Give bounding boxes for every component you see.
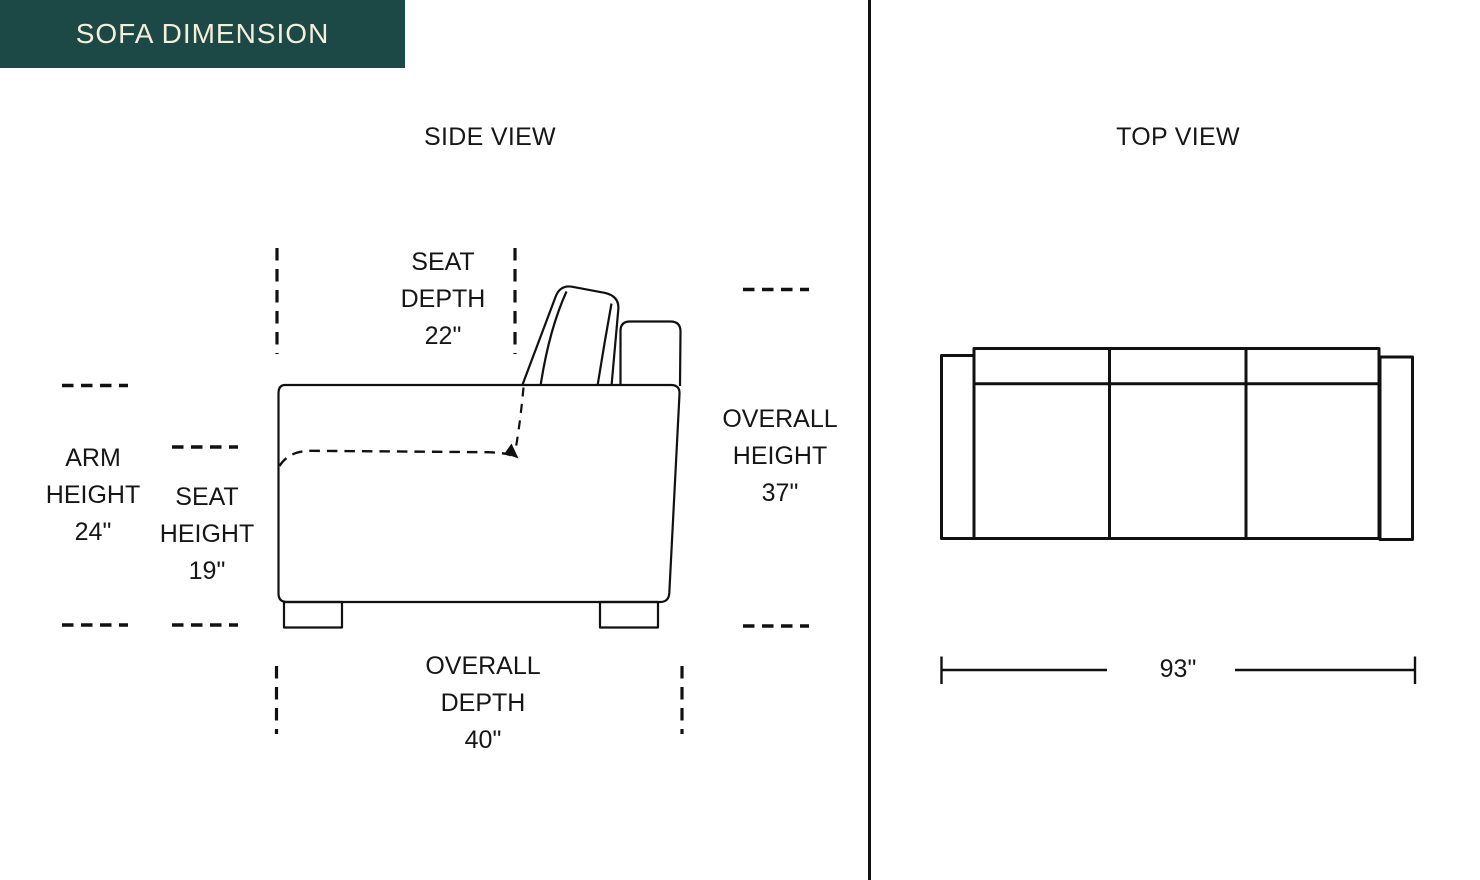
side-sofa-body [279, 385, 680, 602]
overall-height-label-text: OVERALL HEIGHT [722, 405, 837, 470]
seat-height-label: SEAT HEIGHT 19" [142, 479, 272, 590]
arm-height-label-text: ARM HEIGHT [46, 444, 140, 509]
top-sofa-body [974, 349, 1379, 539]
overall-width-value: 93" [1160, 651, 1197, 688]
side-sofa-foot-left [284, 602, 342, 628]
seat-height-label-text: SEAT HEIGHT [160, 483, 254, 548]
top-sofa-left-arm [942, 356, 975, 539]
overall-height-label: OVERALL HEIGHT 37" [704, 401, 856, 512]
top-sofa-right-arm [1380, 357, 1413, 540]
seat-depth-label-text: SEAT DEPTH [401, 248, 486, 313]
overall-depth-value: 40" [407, 722, 559, 759]
side-sofa-back-cushion [522, 286, 618, 386]
side-sofa-back-frame [621, 322, 681, 387]
overall-height-value: 37" [704, 475, 856, 512]
seat-depth-label: SEAT DEPTH 22" [372, 244, 514, 355]
overall-depth-label-text: OVERALL DEPTH [425, 652, 540, 717]
arm-height-label: ARM HEIGHT 24" [28, 440, 158, 551]
seat-depth-value: 22" [372, 318, 514, 355]
arm-height-value: 24" [28, 514, 158, 551]
side-sofa-foot-right [600, 602, 658, 628]
sofa-dimension-diagram: SOFA DIMENSION SIDE VIEW TOP VIEW [0, 0, 1480, 880]
overall-depth-label: OVERALL DEPTH 40" [407, 648, 559, 759]
seat-height-value: 19" [142, 553, 272, 590]
